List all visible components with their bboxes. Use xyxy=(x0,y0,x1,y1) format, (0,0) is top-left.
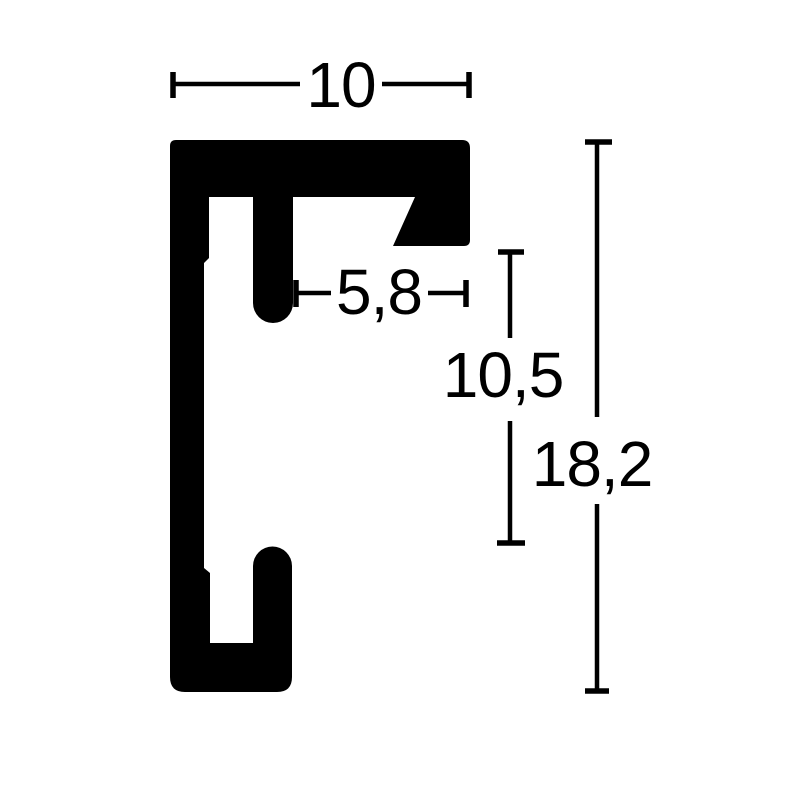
dim-width-top-label: 10 xyxy=(306,49,375,121)
dim-height-inner-label: 10,5 xyxy=(443,339,564,411)
dimension-labels: 10 5,8 10,5 18,2 xyxy=(306,49,652,500)
profile-diagram: 10 5,8 10,5 18,2 xyxy=(0,0,800,802)
dim-width-inner-label: 5,8 xyxy=(336,256,422,328)
diagram-canvas: 10 5,8 10,5 18,2 xyxy=(0,0,800,802)
dim-height-total-label: 18,2 xyxy=(532,428,653,500)
profile-shape xyxy=(170,140,470,692)
